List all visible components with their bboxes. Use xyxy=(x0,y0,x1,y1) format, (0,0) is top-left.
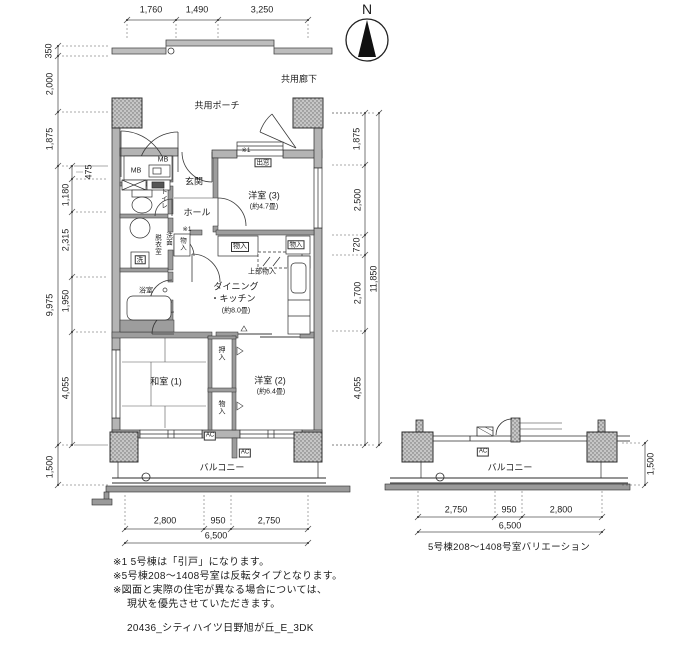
note-line-3: ※図面と実際の住宅が異なる場合については、 xyxy=(113,586,327,596)
dim-right-2700: 2,700 xyxy=(354,282,363,305)
mb-label-1: MB xyxy=(158,157,169,164)
dim-left-4055: 4,055 xyxy=(62,377,71,400)
dim-right-1875: 1,875 xyxy=(353,128,362,151)
dim-right-4055: 4,055 xyxy=(354,377,363,400)
bath-label: 浴室 xyxy=(139,288,153,295)
dim-var-total: 6,500 xyxy=(499,522,522,531)
variation-diagram xyxy=(385,418,630,490)
washroom-label-2: 脱衣室 xyxy=(153,234,160,255)
balcony-label: バルコニー xyxy=(200,464,245,473)
ref1-hall-label: ※1 xyxy=(182,227,191,234)
dim-left-350: 350 xyxy=(45,43,54,58)
dim-var-3: 2,800 xyxy=(550,506,573,515)
dk-area-label: (約8.0畳) xyxy=(222,308,250,315)
japanese1-label: 和室 (1) xyxy=(150,378,182,387)
western3-area-label: (約4.7畳) xyxy=(250,204,278,211)
dim-top-1: 1,760 xyxy=(140,6,163,15)
note-line-2: ※5号棟208〜1408号室は反転タイプとなります。 xyxy=(113,572,342,582)
western2-label: 洋室 (2) xyxy=(254,377,286,386)
mb-label-2: MB xyxy=(131,168,142,175)
dim-var-side: 1,500 xyxy=(647,453,656,476)
dim-left-1875: 1,875 xyxy=(46,128,55,151)
ref1-bay-label: ※1 xyxy=(241,148,250,155)
oshiire-label: 押入 xyxy=(218,346,225,361)
variation-caption: 5号棟208〜1408号室バリエーション xyxy=(428,543,590,553)
dim-left-1180: 1,180 xyxy=(62,184,71,207)
western2-area-label: (約6.4畳) xyxy=(257,389,285,396)
dim-bottom-1: 2,800 xyxy=(154,517,177,526)
dim-top-2: 1,490 xyxy=(186,6,209,15)
dim-left-9975: 9,975 xyxy=(46,294,55,317)
corridor-outline xyxy=(112,40,332,54)
dim-top-3: 3,250 xyxy=(251,6,274,15)
dim-bottom-2: 950 xyxy=(210,517,225,526)
north-arrow-icon xyxy=(346,19,388,61)
dim-right-720: 720 xyxy=(353,237,362,252)
dk-label-1: ダイニング xyxy=(213,283,258,292)
western3-label: 洋室 (3) xyxy=(248,192,280,201)
bottom-storage-label: 物入 xyxy=(218,400,225,415)
dim-left-1500: 1,500 xyxy=(46,456,55,479)
dim-bottom-3: 2,750 xyxy=(258,517,281,526)
variation-ac-label: AC xyxy=(477,448,489,457)
variation-balcony-label: バルコニー xyxy=(488,464,533,473)
dk-label-2: ・キッチン xyxy=(210,295,255,304)
dimension-lines xyxy=(55,17,648,546)
north-label: N xyxy=(362,2,372,16)
dim-left-2000: 2,000 xyxy=(46,73,55,96)
ac1-label: AC xyxy=(204,432,216,441)
dim-right-2500: 2,500 xyxy=(354,189,363,212)
ac2-label: AC xyxy=(239,449,251,458)
dim-right-total: 11,850 xyxy=(370,266,379,293)
dim-left-1950: 1,950 xyxy=(62,290,71,313)
dk-storage2-label: 物入 xyxy=(288,240,305,249)
drawing-title: 20436_シティハイツ日野旭が丘_E_3DK xyxy=(127,624,314,634)
washroom-label-1: 洗面 xyxy=(164,232,171,246)
dim-bottom-total: 6,500 xyxy=(205,532,228,541)
note-line-1: ※1 5号棟は「引戸」になります。 xyxy=(113,558,269,568)
corridor-label: 共用廊下 xyxy=(281,75,317,84)
bay-window-label: 出窓 xyxy=(255,158,272,167)
washer-label: 洗 xyxy=(135,255,146,264)
dim-left-2315: 2,315 xyxy=(62,229,71,252)
floor-plan-canvas xyxy=(0,0,700,650)
dim-var-2: 950 xyxy=(501,506,516,515)
upper-storage-label: 上部物入 xyxy=(248,269,276,276)
toilet-label: トイレ xyxy=(159,188,166,209)
note-line-4: 現状を優先させていただきます。 xyxy=(127,600,281,610)
entrance-label: 玄関 xyxy=(185,178,203,187)
hall-label: ホール xyxy=(183,209,210,218)
hall-storage-label: 物入 xyxy=(178,237,185,251)
dk-storage1-label: 物入 xyxy=(231,242,249,252)
floor-plan-page: N 共用廊下 共用ポーチ MB MB 玄関 ホール ※1 出窓 洋室 (3) (… xyxy=(0,0,700,650)
porch-label: 共用ポーチ xyxy=(194,102,239,111)
dim-var-1: 2,750 xyxy=(445,506,468,515)
dim-left-475: 475 xyxy=(85,164,94,179)
